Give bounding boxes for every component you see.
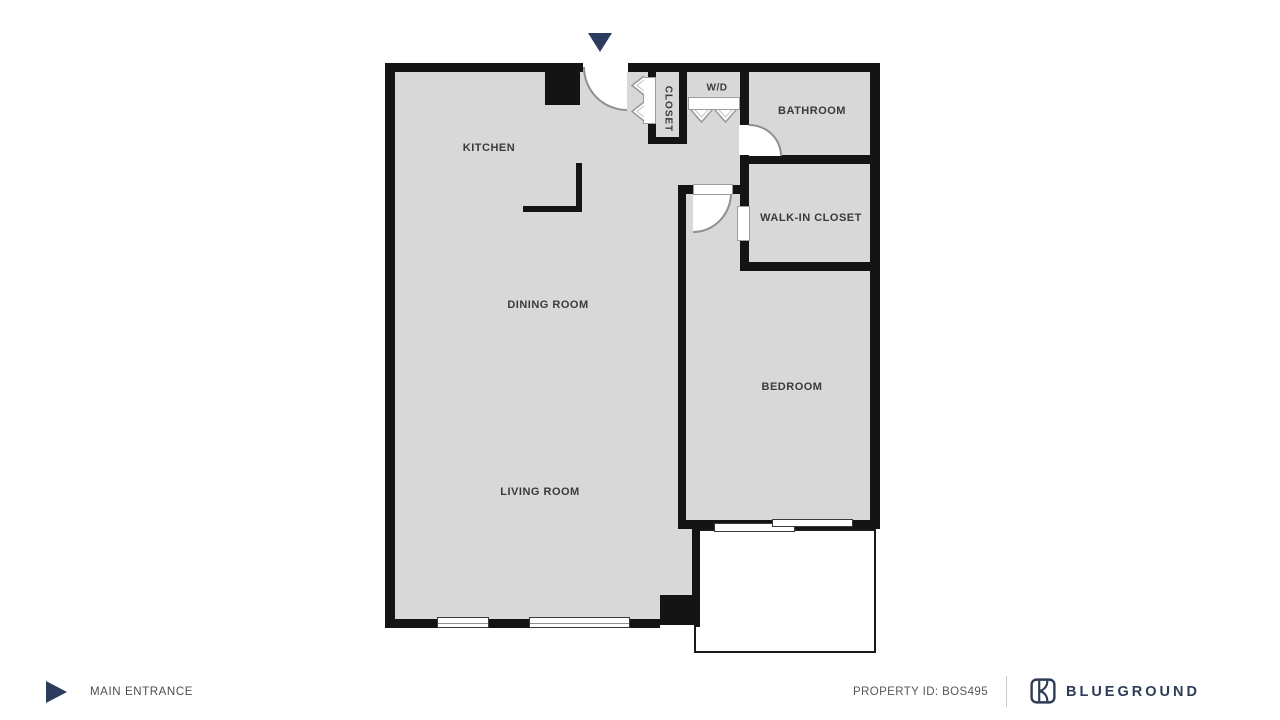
wall-exterior-top-right <box>628 63 880 72</box>
property-id-label: PROPERTY ID: BOS495 <box>853 686 988 698</box>
closet-bifold-door-icon <box>629 75 646 96</box>
room-label-bedroom: BEDROOM <box>762 381 823 393</box>
blueground-wordmark: BLUEGROUND <box>1066 684 1200 700</box>
room-label-wd: W/D <box>707 83 728 94</box>
floor-plan: KITCHEN DINING ROOM LIVING ROOM BEDROOM … <box>0 0 1280 720</box>
balcony-area <box>694 529 876 653</box>
living-room-window-left <box>437 617 489 628</box>
wall-closet-right <box>679 63 687 144</box>
entrance-column-block <box>545 67 580 105</box>
wall-bedroom-top-left <box>678 185 693 194</box>
main-entrance-label: MAIN ENTRANCE <box>90 686 193 698</box>
room-label-bathroom: BATHROOM <box>778 105 846 117</box>
wd-bifold-door-icon <box>714 108 737 124</box>
wall-walkin-bottom <box>740 262 880 271</box>
wall-bathroom-left <box>740 63 749 125</box>
wall-exterior-right <box>870 63 880 529</box>
wall-closet-bottom <box>648 137 687 144</box>
wall-bedroom-left <box>678 185 686 529</box>
wall-bathroom-walkin-divider <box>740 155 880 164</box>
bedroom-door-slab <box>693 184 733 195</box>
blueground-logo-icon <box>1030 678 1056 704</box>
room-label-kitchen: KITCHEN <box>463 142 515 154</box>
room-label-walkin-closet: WALK-IN CLOSET <box>760 212 862 224</box>
closet-bifold-door-icon <box>629 101 646 122</box>
footer-divider <box>1006 676 1007 707</box>
wall-exterior-left <box>385 63 395 628</box>
walkin-closet-door-slab <box>737 206 750 241</box>
entrance-arrow-down-icon <box>588 33 612 52</box>
kitchen-counter-wall-vertical <box>576 163 582 212</box>
kitchen-counter-wall-horizontal <box>523 206 582 212</box>
room-label-living: LIVING ROOM <box>500 486 579 498</box>
bedroom-sliding-door-panel-right <box>772 519 853 527</box>
wd-bifold-door-icon <box>690 108 713 124</box>
background-patch <box>660 625 694 630</box>
structural-column <box>660 595 692 625</box>
living-room-window-right <box>529 617 630 628</box>
room-label-dining: DINING ROOM <box>507 299 588 311</box>
balcony-left-wall <box>692 529 700 627</box>
entrance-arrow-right-icon <box>46 681 67 703</box>
room-label-closet: CLOSET <box>663 86 674 133</box>
